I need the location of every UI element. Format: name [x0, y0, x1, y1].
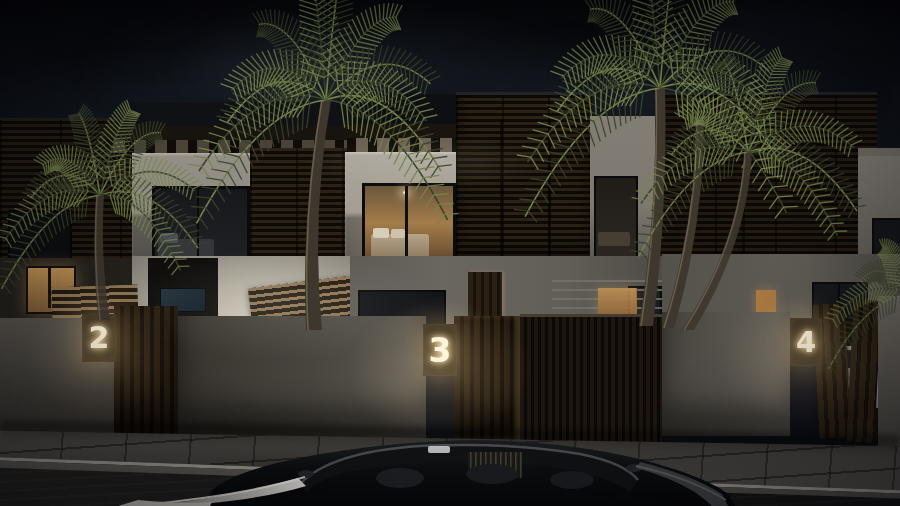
car-seat	[550, 471, 594, 489]
car-seat	[466, 464, 518, 484]
car-mirror	[298, 470, 314, 478]
car-roof-detail	[428, 446, 450, 453]
scene: 2 3 4	[0, 0, 900, 506]
car-seat	[376, 468, 424, 488]
black-car	[0, 0, 900, 506]
